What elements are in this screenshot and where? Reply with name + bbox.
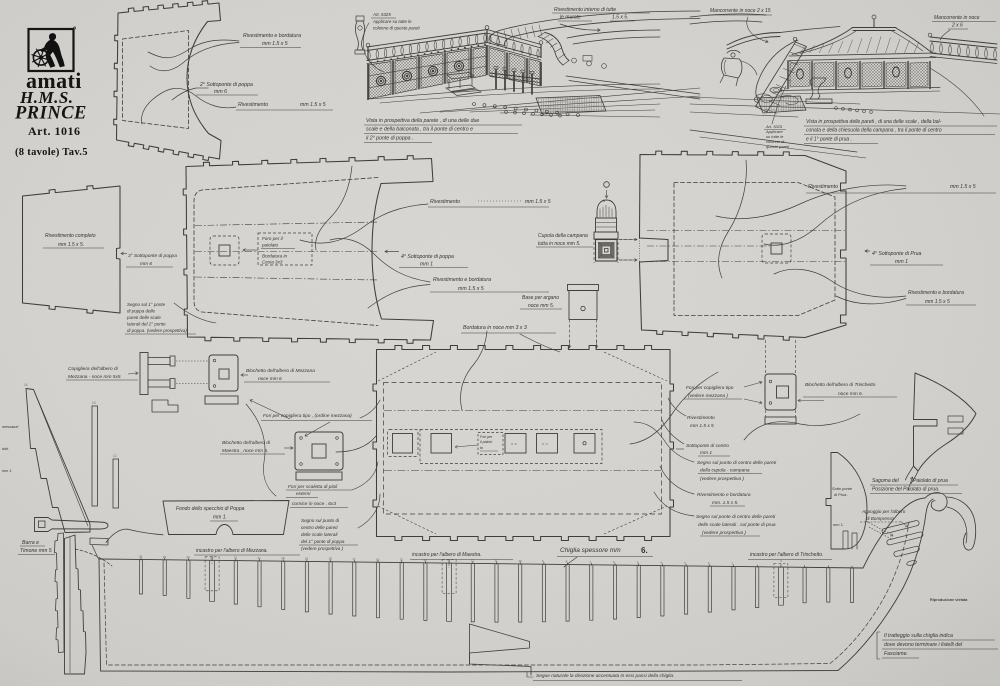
svg-text:Rivestimento e bordatura: Rivestimento e bordatura <box>908 290 964 296</box>
svg-text:(vedere prospettiva ): (vedere prospettiva ) <box>700 476 744 482</box>
svg-text:mm 1.: mm 1. <box>213 515 227 521</box>
svg-text:mm 1: mm 1 <box>700 450 712 456</box>
svg-text:13: 13 <box>92 401 96 405</box>
svg-text:20: 20 <box>281 556 285 560</box>
svg-text:Fondo dello specchio di Poppa: Fondo dello specchio di Poppa <box>176 506 245 512</box>
svg-text:cornice in noce . 6x3: cornice in noce . 6x3 <box>292 501 336 507</box>
svg-text:mm 1.: mm 1. <box>2 469 13 473</box>
svg-text:del 1° ponte di poppa: del 1° ponte di poppa <box>301 539 345 544</box>
svg-text:Fori per scaletta di pioli: Fori per scaletta di pioli <box>288 484 338 490</box>
svg-text:12: 12 <box>471 558 475 562</box>
svg-text:Chiglia spessore mm: Chiglia spessore mm <box>560 547 621 554</box>
svg-text:Segno sul punto di centro dell: Segno sul punto di centro delle pareti <box>697 460 777 466</box>
svg-text:il paiolo: il paiolo <box>480 440 492 444</box>
svg-text:mm 1.5 x 5: mm 1.5 x 5 <box>262 41 288 47</box>
svg-text:mm 1: mm 1 <box>420 262 433 268</box>
svg-text:10: 10 <box>518 559 522 563</box>
svg-text:mm 6: mm 6 <box>214 89 227 95</box>
svg-text:= =: = = <box>511 441 517 446</box>
svg-text:centro delle pareti: centro delle pareti <box>301 525 338 530</box>
svg-text:mm 1.5 x 5: mm 1.5 x 5 <box>458 286 484 292</box>
svg-text:mm. 1.5 x 5.: mm. 1.5 x 5. <box>712 500 738 506</box>
svg-text:Bordatura in noce mm 3 x 3: Bordatura in noce mm 3 x 3 <box>463 325 527 331</box>
svg-text:mm 1.5 x 5: mm 1.5 x 5 <box>300 102 326 108</box>
svg-text:6.: 6. <box>641 546 648 555</box>
svg-text:di poppa. (vedere prospettiva): di poppa. (vedere prospettiva) <box>127 328 187 333</box>
svg-text:mm 1.5 x 5: mm 1.5 x 5 <box>950 184 976 190</box>
svg-text:mm 6: mm 6 <box>140 261 152 267</box>
svg-text:Segno sul ponte di centro dell: Segno sul ponte di centro delle pareti <box>696 514 776 520</box>
svg-text:Blochetto dell'albero di Trin: Blochetto dell'albero di Trinchetto <box>805 382 876 388</box>
svg-text:Posizione del Paiolato di pru: Posizione del Paiolato di prua. <box>872 487 939 493</box>
svg-text:Segno sul 1° ponte: Segno sul 1° ponte <box>127 302 166 307</box>
svg-text:Rivestimento e bordatura: Rivestimento e bordatura <box>697 492 751 498</box>
svg-text:Art. 5325: Art. 5325 <box>372 12 391 17</box>
svg-text:Blochetto dell'albero di: Blochetto dell'albero di <box>222 440 271 446</box>
svg-text:Fori per: Fori per <box>480 435 493 439</box>
svg-text:noce mm 6: noce mm 6 <box>258 376 282 382</box>
svg-text:Appoggio per l'albero: Appoggio per l'albero <box>861 509 906 514</box>
svg-text:(vedere prospettiva ): (vedere prospettiva ) <box>702 530 746 536</box>
svg-text:PRINCE: PRINCE <box>14 104 87 124</box>
svg-text:messana!: messana! <box>2 425 19 429</box>
svg-text:Rivestimento: Rivestimento <box>430 199 460 205</box>
svg-text:Rivestimento: Rivestimento <box>687 415 715 421</box>
svg-text:Paiolato di prua: Paiolato di prua <box>913 478 948 484</box>
svg-text:Barra e: Barra e <box>22 540 39 546</box>
svg-text:Rivestimento e bordatura: Rivestimento e bordatura <box>433 277 491 283</box>
svg-text:colonne di queste pareti: colonne di queste pareti <box>373 26 421 31</box>
svg-text:delle scale laterali: delle scale laterali <box>301 532 338 537</box>
svg-text:14: 14 <box>423 558 427 562</box>
svg-text:Mezzana - noce mm 5x5: Mezzana - noce mm 5x5 <box>68 374 121 380</box>
svg-text:di poppa delle: di poppa delle <box>127 309 156 314</box>
svg-text:incastro per l'albero di Mezz: incastro per l'albero di Mezzana. <box>196 548 268 554</box>
svg-text:dove devono terminare i listel: dove devono terminare i listelli del <box>884 642 963 648</box>
svg-text:25: 25 <box>163 555 167 559</box>
svg-text:= =: = = <box>542 441 548 446</box>
svg-text:Rivestimento: Rivestimento <box>808 184 838 190</box>
svg-text:Applicare su tutte le: Applicare su tutte le <box>372 19 412 24</box>
svg-text:15: 15 <box>400 558 404 562</box>
svg-text:1.5 x 5.: 1.5 x 5. <box>612 15 628 21</box>
svg-text:2 x 6: 2 x 6 <box>951 23 963 29</box>
svg-text:mm 1: mm 1 <box>895 259 908 265</box>
svg-text:12: 12 <box>113 454 117 458</box>
svg-text:di Prua .: di Prua . <box>834 492 849 497</box>
svg-text:Fori per copigliera tipo , (or: Fori per copigliera tipo , (ordine mezza… <box>263 413 352 419</box>
svg-text:mm 1.5 x 5: mm 1.5 x 5 <box>925 299 950 305</box>
svg-text:Segno sul punto di: Segno sul punto di <box>301 518 340 523</box>
svg-text:4° Sottoponte di poppa: 4° Sottoponte di poppa <box>401 254 454 260</box>
svg-text:(8 tavole) Tav.5: (8 tavole) Tav.5 <box>15 147 88 158</box>
svg-text:Segue naturale la direzione ac: Segue naturale la direzione accentuata i… <box>536 673 674 679</box>
svg-text:Foro per il: Foro per il <box>262 236 284 241</box>
svg-text:le murate: le murate <box>560 15 581 21</box>
svg-text:noce mm 6.: noce mm 6. <box>838 391 863 397</box>
svg-text:Timone mm 5: Timone mm 5 <box>20 548 52 554</box>
svg-text:pareti delle scale: pareti delle scale <box>126 315 161 320</box>
svg-text:Bordatura in: Bordatura in <box>262 254 287 259</box>
svg-text:Base per argano: Base per argano <box>522 295 559 301</box>
svg-text:Maestra , noce mm 5.: Maestra , noce mm 5. <box>222 448 268 454</box>
svg-text:paiolato: paiolato <box>261 243 279 248</box>
svg-text:Cupola della campana: Cupola della campana <box>538 233 588 239</box>
svg-text:Sottoponte di centro: Sottoponte di centro <box>686 443 729 449</box>
svg-text:di Bompresso: di Bompresso <box>866 516 895 521</box>
svg-text:26: 26 <box>139 554 143 558</box>
svg-text:conata e della chiesuola del: conata e della chiesuola della campana ,… <box>806 128 942 134</box>
svg-text:mm 1.5 x 5.: mm 1.5 x 5. <box>58 242 84 248</box>
svg-text:tutta in noce mm 5.: tutta in noce mm 5. <box>538 241 581 247</box>
svg-text:Fori per copigliera tipo: Fori per copigliera tipo <box>686 385 734 391</box>
svg-text:mm 1.5 x 5: mm 1.5 x 5 <box>525 199 551 205</box>
svg-text:to: to <box>480 446 483 450</box>
svg-text:mm 1.: mm 1. <box>833 522 844 527</box>
svg-text:e il 1° ponte di prua .: e il 1° ponte di prua . <box>806 137 852 143</box>
svg-text:scale e della balconata , t: scale e della balconata , tra il ponte d… <box>366 127 473 133</box>
svg-text:2° Sottoponte di poppa: 2° Sottoponte di poppa <box>199 82 253 88</box>
svg-text:18: 18 <box>329 557 333 561</box>
svg-text:incastro per l'albero di Trinc: incastro per l'albero di Trinchetto. <box>750 552 823 558</box>
svg-text:16: 16 <box>376 557 380 561</box>
svg-text:incastro per l'albero di Maest: incastro per l'albero di Maestra. <box>412 552 482 558</box>
svg-text:mm 1.5 x 5: mm 1.5 x 5 <box>690 423 714 429</box>
svg-text:Sotto ponte: Sotto ponte <box>832 486 853 491</box>
svg-text:Rivestimento interno di tutte: Rivestimento interno di tutte <box>554 7 616 13</box>
svg-text:Cesia 3x3: Cesia 3x3 <box>262 260 283 265</box>
svg-text:17: 17 <box>352 557 356 561</box>
svg-text:della cupola - campana: della cupola - campana <box>700 468 750 474</box>
svg-text:14: 14 <box>24 383 28 387</box>
svg-text:Blochetto dell'albero di Mezza: Blochetto dell'albero di Mezzana <box>246 368 315 374</box>
svg-text:Fasciame.: Fasciame. <box>884 651 908 657</box>
svg-text:delle scale laterali . sul pon: delle scale laterali . sul ponte di prua <box>698 522 776 528</box>
svg-text:noce mm 5.: noce mm 5. <box>528 303 554 309</box>
svg-text:4° Sottoponte di Prua: 4° Sottoponte di Prua <box>872 251 921 257</box>
svg-text:Copigliera dell'albero di: Copigliera dell'albero di <box>68 366 119 372</box>
svg-text:queste pareti: queste pareti <box>766 144 789 149</box>
svg-text:Art. 1016: Art. 1016 <box>28 124 81 138</box>
svg-text:laterali del 2° ponte: laterali del 2° ponte <box>127 322 166 327</box>
svg-text:19: 19 <box>305 556 309 560</box>
svg-text:Vista in prospettiva delle p: Vista in prospettiva delle pareti , di u… <box>806 119 942 125</box>
svg-text:tutti.: tutti. <box>2 447 9 451</box>
svg-text:Rivestimento: Rivestimento <box>238 102 268 108</box>
svg-text:Riproduzione vietata: Riproduzione vietata <box>930 598 968 602</box>
svg-text:Mancorrente in noce: Mancorrente in noce <box>934 15 980 21</box>
svg-text:Il tratteggio sulla chiglia in: Il tratteggio sulla chiglia indica <box>884 633 953 639</box>
svg-text:Mancorrente in noce 2 x 15: Mancorrente in noce 2 x 15 <box>710 8 771 14</box>
svg-text:3° Sottoponte di poppa: 3° Sottoponte di poppa <box>128 253 177 259</box>
svg-text:24: 24 <box>186 555 190 559</box>
svg-text:Rivestimento completo: Rivestimento completo <box>45 233 96 239</box>
svg-text:22: 22 <box>234 556 238 560</box>
svg-text:Sagoma del: Sagoma del <box>872 478 900 484</box>
svg-text:Rivestimento e bordatura: Rivestimento e bordatura <box>243 33 301 39</box>
svg-text:(vedere mezzana ): (vedere mezzana ) <box>688 393 728 399</box>
svg-text:Vista in prospettiva della p: Vista in prospettiva della parete , di u… <box>366 118 479 124</box>
svg-text:21: 21 <box>258 556 262 560</box>
svg-text:il 2° ponte di poppa .: il 2° ponte di poppa . <box>366 136 413 142</box>
svg-text:(vedere prospettiva ): (vedere prospettiva ) <box>301 546 344 551</box>
svg-text:esterni: esterni <box>296 491 311 497</box>
